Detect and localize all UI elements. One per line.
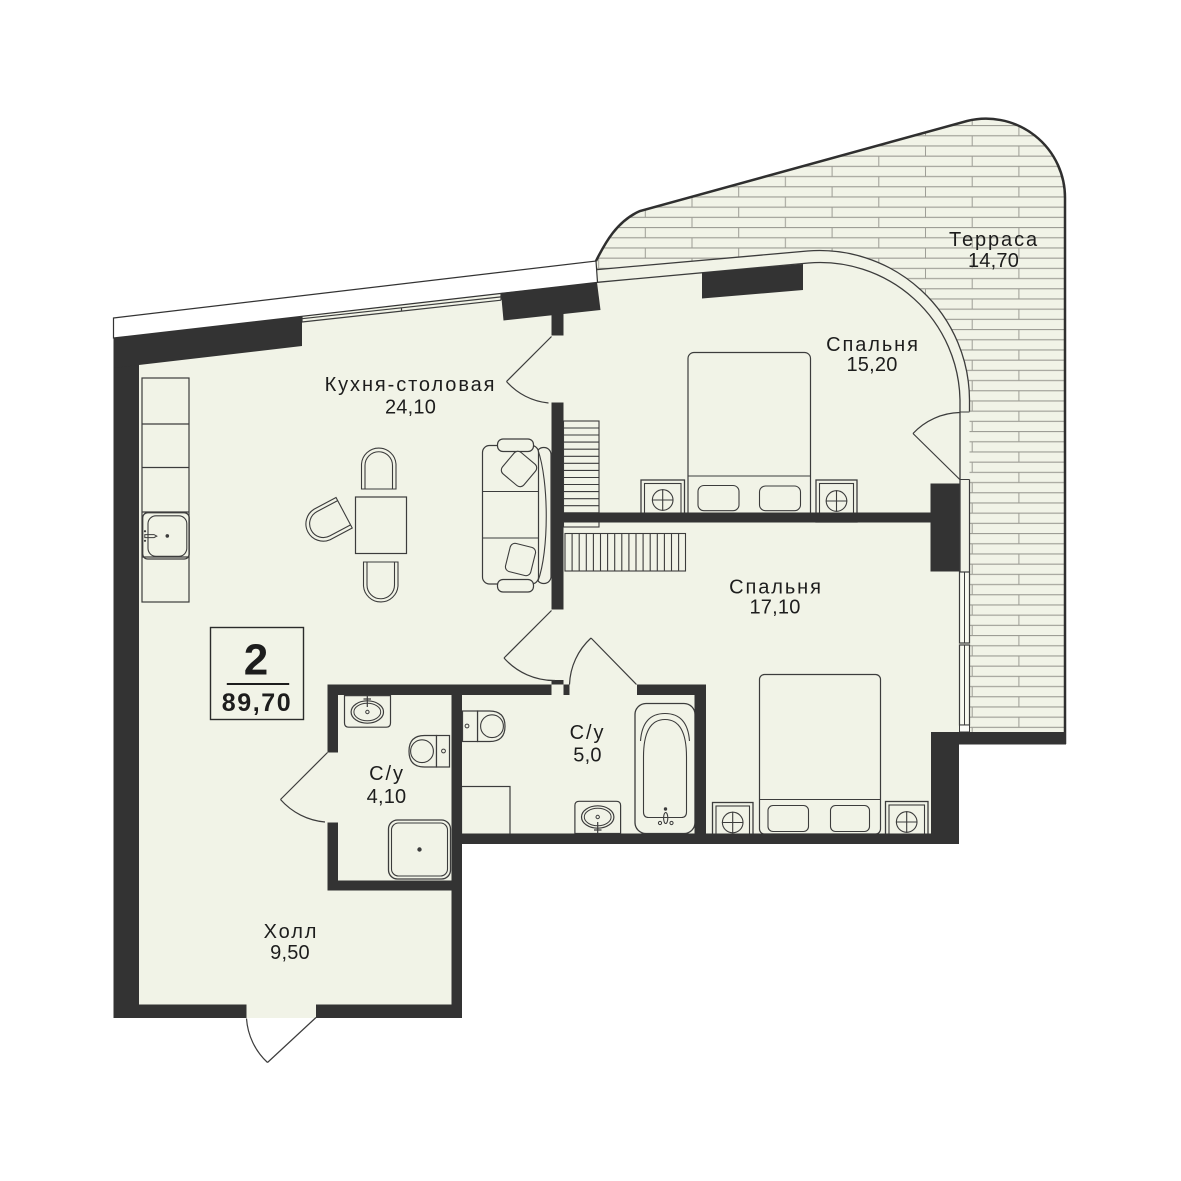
svg-text:Холл: Холл bbox=[264, 921, 319, 943]
svg-text:89,70: 89,70 bbox=[222, 689, 293, 717]
svg-text:15,20: 15,20 bbox=[846, 354, 897, 376]
svg-text:Спальня: Спальня bbox=[729, 577, 823, 599]
svg-text:9,50: 9,50 bbox=[270, 942, 310, 964]
svg-text:5,0: 5,0 bbox=[573, 745, 601, 767]
svg-text:С/у: С/у bbox=[570, 722, 606, 744]
svg-text:17,10: 17,10 bbox=[749, 597, 800, 619]
svg-text:2: 2 bbox=[244, 636, 268, 685]
svg-text:Терраса: Терраса bbox=[949, 229, 1039, 251]
svg-text:Спальня: Спальня bbox=[826, 334, 920, 356]
svg-text:4,10: 4,10 bbox=[367, 786, 407, 808]
svg-text:Кухня-столовая: Кухня-столовая bbox=[325, 374, 497, 396]
svg-text:24,10: 24,10 bbox=[385, 397, 436, 419]
svg-text:С/у: С/у bbox=[369, 763, 405, 785]
svg-text:14,70: 14,70 bbox=[968, 250, 1019, 272]
